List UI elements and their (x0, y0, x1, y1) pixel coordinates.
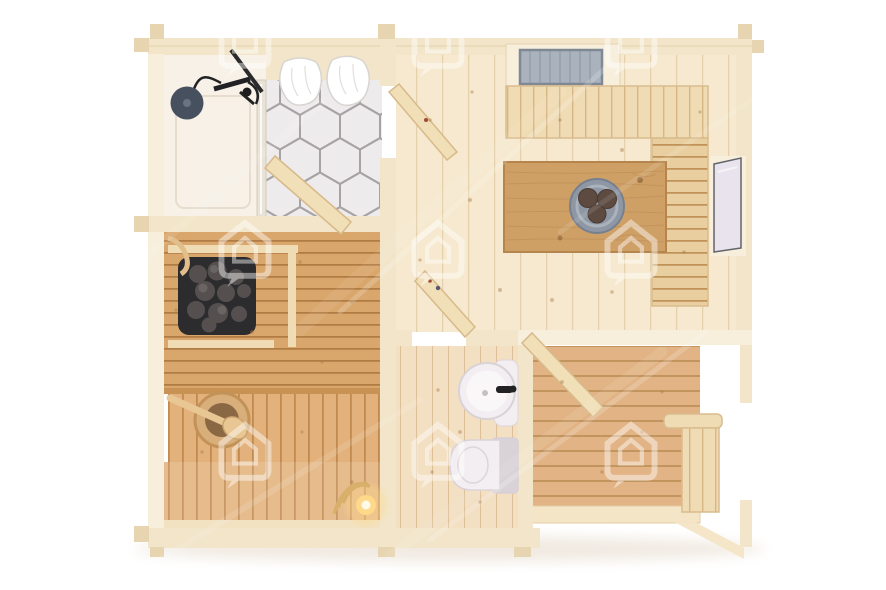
center-wall-lower (380, 158, 396, 538)
sink-drain (482, 390, 488, 396)
terrace-wall-stub (740, 345, 752, 403)
hall-bath-wall-left (392, 330, 412, 346)
side-window (710, 156, 746, 256)
terrace-bench-armrest (664, 414, 722, 428)
center-wall-upper (380, 38, 396, 86)
table-knot2 (558, 236, 563, 241)
towel-left (280, 58, 322, 105)
towel-right (327, 56, 369, 105)
terrace-bench (682, 428, 719, 512)
living-terrace-wall (518, 330, 752, 345)
floorplan-render (0, 0, 886, 590)
left-outer-wall (148, 54, 164, 538)
hall-door-hinge-mark (436, 286, 440, 290)
mixer-knob (243, 88, 252, 97)
hall-bath-wall-right (466, 330, 518, 346)
terrace-corner-post (740, 500, 752, 547)
render-stage (0, 0, 886, 590)
shower-head-center (183, 99, 191, 107)
hall-door-handle (424, 118, 428, 122)
sauna-bench-edge (164, 388, 388, 394)
faucet-knob (510, 386, 517, 393)
terrace-edge-board (524, 506, 700, 523)
lantern-flame (362, 501, 371, 510)
